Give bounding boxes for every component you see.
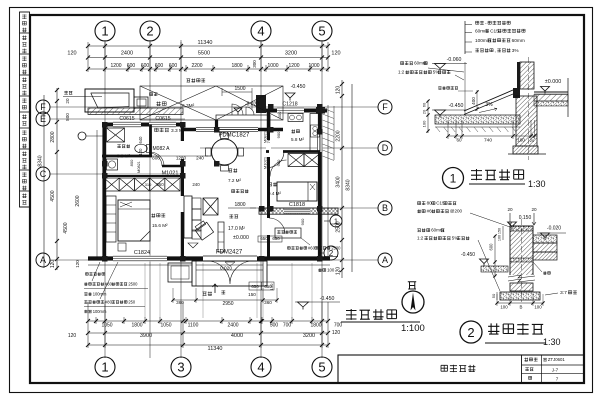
svg-text:B: B xyxy=(382,203,388,213)
svg-text:M0821: M0821 xyxy=(137,161,141,173)
svg-text:120: 120 xyxy=(138,148,143,156)
svg-text:0.020: 0.020 xyxy=(220,266,232,272)
svg-text:120: 120 xyxy=(332,330,341,336)
svg-text:1800: 1800 xyxy=(231,63,242,69)
svg-text:C0615: C0615 xyxy=(155,116,170,122)
svg-text:FDM2427: FDM2427 xyxy=(216,250,243,256)
svg-text:20: 20 xyxy=(507,207,513,212)
svg-text:1: 1 xyxy=(450,172,457,186)
svg-text:100: 100 xyxy=(327,268,335,273)
svg-text:360: 360 xyxy=(264,300,272,305)
svg-text:4: 4 xyxy=(257,360,264,375)
svg-text:360: 360 xyxy=(176,300,184,305)
svg-text:M082 A: M082 A xyxy=(153,146,171,152)
svg-text:100: 100 xyxy=(500,305,508,310)
svg-text:650: 650 xyxy=(272,236,280,241)
svg-text:-0.450: -0.450 xyxy=(291,84,306,90)
svg-text:2400: 2400 xyxy=(121,51,133,57)
svg-text:±0.000: ±0.000 xyxy=(233,235,249,241)
svg-text:-0.060: -0.060 xyxy=(447,57,462,63)
svg-text:-0.450: -0.450 xyxy=(461,252,475,258)
svg-text:7: 7 xyxy=(556,377,559,382)
svg-text:1: 1 xyxy=(101,360,108,375)
svg-text:20: 20 xyxy=(422,109,427,114)
svg-text:ZTJ0601: ZTJ0601 xyxy=(548,357,566,362)
svg-text:A: A xyxy=(40,255,46,265)
svg-text:100: 100 xyxy=(422,120,427,127)
svg-text:740: 740 xyxy=(484,138,492,144)
svg-text:@200: @200 xyxy=(450,209,463,214)
svg-text:1800: 1800 xyxy=(234,202,245,208)
svg-text:1:2: 1:2 xyxy=(398,70,405,75)
svg-text:180: 180 xyxy=(517,138,525,143)
svg-text:130: 130 xyxy=(269,283,274,290)
svg-text:100: 100 xyxy=(534,305,542,310)
svg-text:120: 120 xyxy=(331,51,340,57)
svg-text:3:7: 3:7 xyxy=(560,290,567,296)
svg-text:9.4 M²: 9.4 M² xyxy=(268,191,281,196)
svg-text:C15: C15 xyxy=(490,28,499,34)
svg-text:C: C xyxy=(40,169,47,179)
svg-text:FDMC1827: FDMC1827 xyxy=(219,133,250,139)
svg-text:,: , xyxy=(495,49,496,54)
svg-text:3400: 3400 xyxy=(336,176,342,187)
svg-text:1100: 1100 xyxy=(188,323,199,329)
svg-text:7.2 M²: 7.2 M² xyxy=(228,178,241,183)
svg-text:60: 60 xyxy=(456,138,462,143)
svg-text:1500: 1500 xyxy=(234,86,245,92)
svg-text:#80: #80 xyxy=(105,299,113,304)
svg-text:20: 20 xyxy=(65,98,70,104)
svg-text:3200: 3200 xyxy=(285,51,297,57)
svg-text:-0.450: -0.450 xyxy=(320,296,335,302)
svg-text:1:2: 1:2 xyxy=(417,236,424,241)
svg-text:3.3 M²: 3.3 M² xyxy=(171,128,185,134)
svg-text:60mm: 60mm xyxy=(512,38,525,44)
svg-text:120: 120 xyxy=(75,260,80,268)
svg-text:50: 50 xyxy=(491,293,496,298)
svg-text:2950: 2950 xyxy=(222,301,233,307)
svg-text:6.3M²: 6.3M² xyxy=(182,103,195,109)
svg-text:500: 500 xyxy=(270,323,279,329)
svg-text:C1218: C1218 xyxy=(282,102,297,108)
svg-text:5: 5 xyxy=(318,24,325,39)
svg-text:80: 80 xyxy=(427,201,433,206)
svg-text:2: 2 xyxy=(146,24,153,39)
svg-text:800: 800 xyxy=(65,113,70,121)
svg-text:20: 20 xyxy=(531,207,537,212)
svg-text:1200: 1200 xyxy=(288,63,299,69)
svg-text:5500: 5500 xyxy=(198,51,210,57)
svg-text:1800: 1800 xyxy=(131,323,142,329)
svg-text:5: 5 xyxy=(318,360,325,375)
svg-text:2400: 2400 xyxy=(227,323,238,329)
svg-text:60: 60 xyxy=(422,102,427,107)
svg-text:C1824: C1824 xyxy=(134,250,150,256)
svg-text:B: B xyxy=(520,305,523,310)
svg-text:C1818: C1818 xyxy=(289,202,305,208)
svg-text:1000: 1000 xyxy=(267,63,278,69)
svg-text:100mm: 100mm xyxy=(93,309,107,314)
svg-text:2200: 2200 xyxy=(336,130,342,141)
svg-text:900: 900 xyxy=(300,218,305,225)
svg-text:F: F xyxy=(40,102,46,112)
svg-text:M1021: M1021 xyxy=(263,156,268,169)
svg-text:3900: 3900 xyxy=(140,333,152,339)
svg-text:M0821: M0821 xyxy=(263,130,268,143)
svg-text:-0.450: -0.450 xyxy=(449,103,464,109)
svg-text:4: 4 xyxy=(257,24,264,39)
svg-text:11340: 11340 xyxy=(208,346,223,352)
svg-text:2600: 2600 xyxy=(75,195,81,206)
svg-text:1: 1 xyxy=(334,219,338,226)
svg-text:4500: 4500 xyxy=(63,222,69,233)
svg-text:8340: 8340 xyxy=(38,155,44,166)
svg-text:4500: 4500 xyxy=(50,190,56,201)
svg-text:950: 950 xyxy=(156,182,164,187)
svg-text:3200: 3200 xyxy=(303,333,315,339)
svg-text:J-7: J-7 xyxy=(552,368,559,373)
svg-text:3%: 3% xyxy=(512,48,520,54)
svg-text:3%: 3% xyxy=(485,102,493,108)
svg-text:E: E xyxy=(40,114,46,124)
svg-text:±0.000: ±0.000 xyxy=(545,79,561,85)
svg-text:4000: 4000 xyxy=(231,333,243,339)
svg-text:120: 120 xyxy=(67,51,76,57)
svg-text:800: 800 xyxy=(129,159,134,166)
svg-text:950: 950 xyxy=(276,159,281,166)
svg-text:120: 120 xyxy=(336,86,342,95)
svg-text:650: 650 xyxy=(260,236,268,241)
svg-text:900: 900 xyxy=(276,131,281,138)
svg-text:2200: 2200 xyxy=(191,63,202,69)
svg-text:250: 250 xyxy=(128,299,136,304)
svg-text:100mm: 100mm xyxy=(93,291,107,296)
svg-text:300: 300 xyxy=(252,60,257,68)
svg-text:1: 1 xyxy=(101,24,108,39)
svg-text:20: 20 xyxy=(530,138,535,143)
svg-text:1050: 1050 xyxy=(101,323,112,329)
svg-text:1:30: 1:30 xyxy=(528,179,546,189)
svg-text:5.8 M²: 5.8 M² xyxy=(291,137,304,142)
svg-text:#6: #6 xyxy=(427,209,433,214)
svg-text:3: 3 xyxy=(177,360,184,375)
svg-text:-0.020: -0.020 xyxy=(245,102,259,108)
svg-text:800: 800 xyxy=(152,156,160,161)
svg-text:0.150: 0.150 xyxy=(519,215,532,221)
svg-text:1200: 1200 xyxy=(110,63,121,69)
svg-text:1050: 1050 xyxy=(160,323,171,329)
svg-text:310: 310 xyxy=(145,182,152,187)
svg-text:C0615: C0615 xyxy=(119,116,134,122)
svg-text:240: 240 xyxy=(196,156,204,161)
svg-text:2500: 2500 xyxy=(128,281,138,286)
svg-text:1:100: 1:100 xyxy=(401,323,425,334)
svg-text:120: 120 xyxy=(68,333,77,339)
svg-text:240: 240 xyxy=(192,182,200,187)
svg-text:2800: 2800 xyxy=(50,131,56,142)
svg-text:D: D xyxy=(382,143,389,153)
svg-text:300: 300 xyxy=(277,111,282,118)
svg-text:15.6 M²: 15.6 M² xyxy=(152,223,168,228)
svg-text:17.0 M²: 17.0 M² xyxy=(228,226,245,232)
svg-text:#60: #60 xyxy=(308,245,316,250)
svg-text:#80: #80 xyxy=(105,281,113,286)
svg-text:600: 600 xyxy=(489,243,494,251)
svg-text:640: 640 xyxy=(138,136,143,144)
svg-text:-0.020: -0.020 xyxy=(547,226,561,232)
svg-text:5.5 M²: 5.5 M² xyxy=(117,154,130,159)
svg-text:1:30: 1:30 xyxy=(543,337,561,347)
svg-text:F: F xyxy=(382,102,388,112)
svg-text:150: 150 xyxy=(498,228,502,234)
svg-text:150: 150 xyxy=(248,292,256,297)
svg-text:8340: 8340 xyxy=(346,179,352,190)
svg-text:1280: 1280 xyxy=(176,156,187,161)
svg-text:11340: 11340 xyxy=(198,40,213,46)
svg-text:100: 100 xyxy=(498,235,502,241)
svg-text:A: A xyxy=(382,255,388,265)
svg-text:700: 700 xyxy=(334,323,343,329)
svg-text:700: 700 xyxy=(283,323,292,329)
svg-text:650: 650 xyxy=(251,284,259,289)
svg-text:2: 2 xyxy=(467,325,474,340)
svg-text:400: 400 xyxy=(471,97,476,105)
